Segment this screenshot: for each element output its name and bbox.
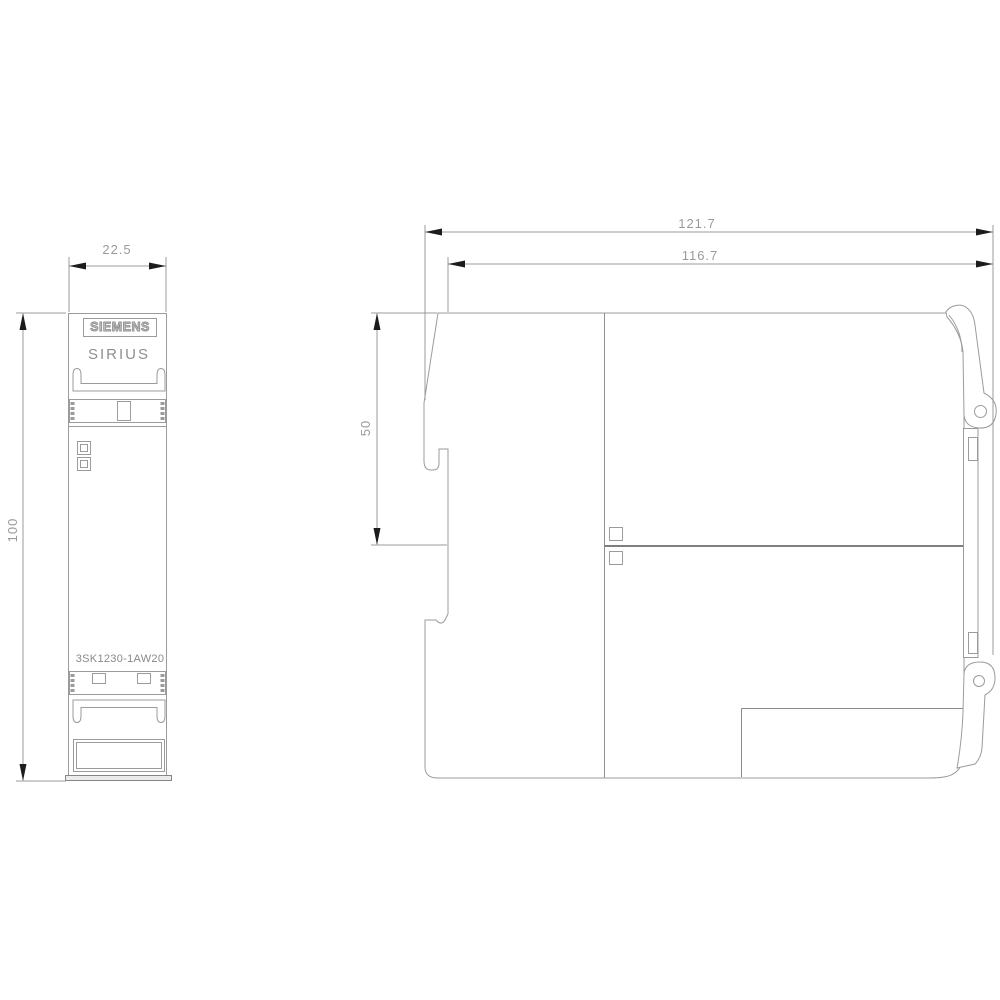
dim-side-upper — [371, 313, 447, 545]
front-lower-terminal-band — [70, 672, 166, 695]
drawing-canvas: 22.5 100 SIEMENS SIRIUS 3SK1230-1AW20 12… — [0, 0, 1000, 1000]
front-upper-terminal-band — [69, 400, 167, 427]
front-bottom-handle — [73, 700, 165, 723]
side-overall-width-dim-label: 121.7 — [647, 216, 747, 232]
side-slider-strip — [964, 429, 979, 658]
dimension-drawing-svg — [0, 0, 1000, 1000]
dim-side-housing — [448, 257, 993, 312]
side-housing-width-dim-label: 116.7 — [650, 248, 750, 264]
release-lever-top — [946, 305, 996, 428]
side-indicator-square-2 — [610, 552, 623, 565]
side-upper-height-dim-label: 50 — [358, 398, 374, 458]
front-top-handle — [73, 369, 165, 392]
front-indicator-windows — [78, 442, 91, 471]
side-indicator-square-1 — [610, 528, 623, 541]
siemens-logo: SIEMENS — [84, 319, 156, 336]
front-height-dim-label: 100 — [5, 500, 21, 560]
front-label-window — [74, 740, 165, 772]
dim-side-overall — [425, 225, 993, 655]
dim-front-height — [16, 313, 66, 781]
front-body-outline — [69, 314, 167, 777]
side-terminal-cover — [742, 709, 964, 778]
release-lever-bottom — [957, 662, 995, 768]
front-base-plate — [66, 776, 172, 781]
front-view — [66, 314, 172, 781]
dim-front-width — [69, 257, 166, 312]
dimension-lines — [16, 225, 993, 781]
product-line-label: SIRIUS — [69, 346, 169, 363]
front-width-dim-label: 22.5 — [87, 242, 147, 258]
part-number-label: 3SK1230-1AW20 — [58, 653, 182, 665]
side-view — [424, 305, 996, 778]
